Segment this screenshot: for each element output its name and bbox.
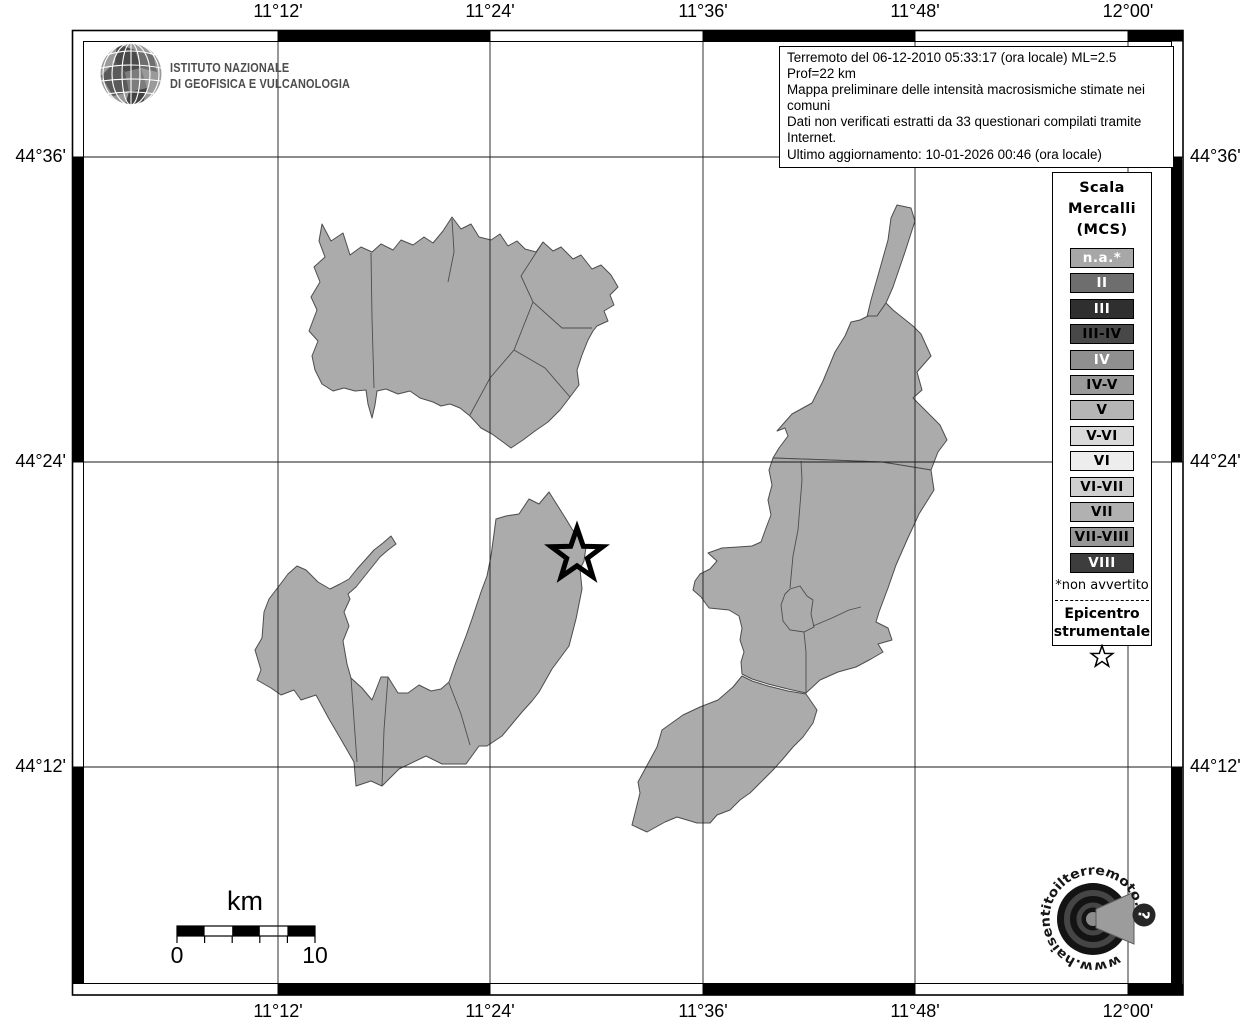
lat-tick-label: 44°12' (0, 756, 66, 777)
legend-item: n.a.* (1070, 248, 1134, 268)
municipality-polygon (309, 217, 618, 448)
lat-tick-label: 44°12' (1190, 756, 1254, 777)
legend-intensity-scale: n.a.* II III III-IV IV IV-V V V-VI VI VI… (1053, 248, 1151, 573)
legend-epicenter-label: strumentale (1053, 623, 1151, 641)
scale-bar-end-label: 10 (295, 942, 335, 969)
legend-item: III-IV (1070, 324, 1134, 344)
map-frame (73, 31, 1184, 996)
municipality-polygons (255, 205, 947, 832)
legend-item: VI (1070, 451, 1134, 471)
lon-tick-label: 11°12' (233, 1001, 323, 1022)
event-info-box: Terremoto del 06-12-2010 05:33:17 (ora l… (779, 46, 1174, 168)
event-info-line: Dati non verificati estratti da 33 quest… (787, 114, 1166, 146)
municipality-polygon (773, 303, 947, 470)
legend-title-line: Mercalli (1053, 199, 1151, 220)
lon-tick-label: 11°48' (870, 1001, 960, 1022)
scale-bar (177, 926, 315, 943)
legend-divider (1055, 600, 1149, 601)
ingv-globe-icon (100, 43, 162, 105)
lat-tick-label: 44°24' (0, 451, 66, 472)
event-info-line: Mappa preliminare delle intensità macros… (787, 82, 1166, 114)
legend-item: IV (1070, 350, 1134, 370)
scale-bar-start-label: 0 (157, 942, 197, 969)
scale-bar-unit-label: km (200, 886, 290, 917)
municipality-polygon (632, 676, 817, 832)
municipality-polygon (255, 492, 586, 786)
ingv-wordmark-line1: ISTITUTO NAZIONALE (170, 60, 350, 76)
event-info-line: Terremoto del 06-12-2010 05:33:17 (ora l… (787, 50, 1166, 82)
legend-title-line: Scala (1053, 178, 1151, 199)
lon-tick-label: 11°36' (658, 1, 748, 22)
lon-tick-label: 11°24' (445, 1001, 535, 1022)
grid-lines (84, 42, 1172, 984)
municipality-polygon (693, 458, 934, 693)
legend-title-line: (MCS) (1053, 220, 1151, 241)
lat-tick-label: 44°36' (1190, 146, 1254, 167)
lon-tick-label: 11°36' (658, 1001, 748, 1022)
legend-item: V-VI (1070, 426, 1134, 446)
legend-item: VII (1070, 502, 1134, 522)
legend-epicenter-label: Epicentro (1053, 605, 1151, 623)
lon-tick-label: 12°00' (1083, 1, 1173, 22)
event-info-line: Ultimo aggiornamento: 10-01-2026 00:46 (… (787, 147, 1166, 163)
legend-item: VI-VII (1070, 477, 1134, 497)
legend-footnote: *non avvertito (1053, 578, 1151, 593)
lon-tick-label: 11°12' (233, 1, 323, 22)
lat-tick-label: 44°24' (1190, 451, 1254, 472)
legend-item: IV-V (1070, 375, 1134, 395)
mercalli-legend-panel: Scala Mercalli (MCS) n.a.* II III III-IV… (1052, 172, 1152, 646)
legend-item: VIII (1070, 553, 1134, 573)
macroseismic-map-page: www.haisentitoilterremoto.it ? 11°12' 11… (0, 0, 1254, 1024)
lat-tick-label: 44°36' (0, 146, 66, 167)
lon-tick-label: 11°24' (445, 1, 535, 22)
legend-item: II (1070, 273, 1134, 293)
legend-item: VII-VIII (1070, 527, 1134, 547)
lon-tick-label: 12°00' (1083, 1001, 1173, 1022)
haisentito-logo: www.haisentitoilterremoto.it ? (1038, 863, 1155, 974)
municipality-polygon (867, 205, 915, 317)
ingv-wordmark: ISTITUTO NAZIONALE DI GEOFISICA E VULCAN… (170, 60, 350, 92)
legend-item: V (1070, 400, 1134, 420)
lon-tick-label: 11°48' (870, 1, 960, 22)
legend-item: III (1070, 299, 1134, 319)
ingv-wordmark-line2: DI GEOFISICA E VULCANOLOGIA (170, 76, 350, 92)
legend-star-icon (1088, 644, 1116, 670)
